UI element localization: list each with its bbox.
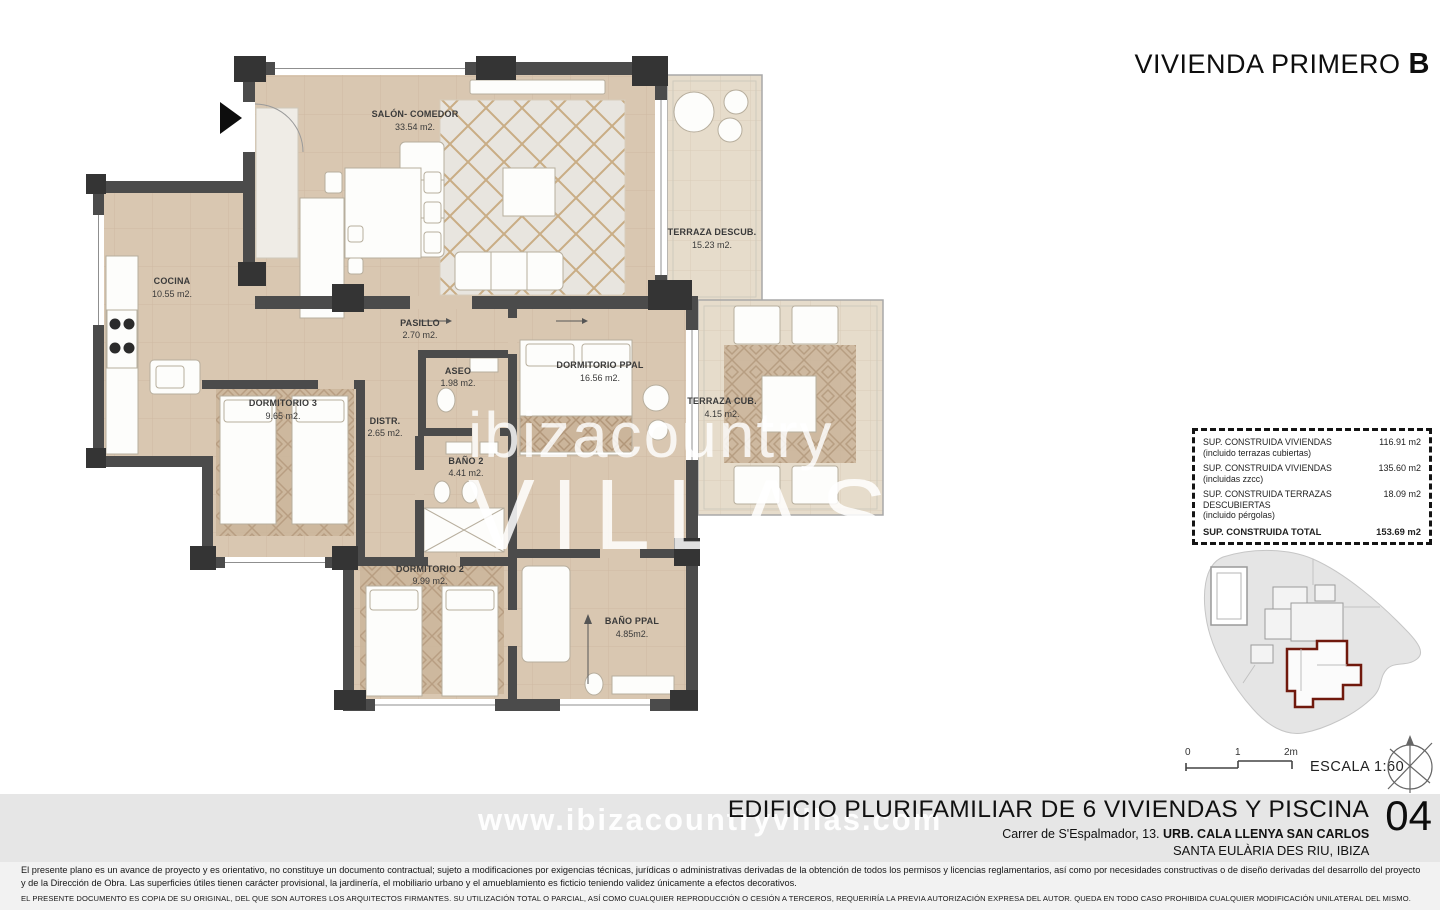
- table-row-total: SUP. CONSTRUIDA TOTAL 153.69 m2: [1203, 526, 1421, 537]
- site-plan: [1195, 545, 1440, 740]
- room-label-dorm2: DORMITORIO 2: [396, 564, 464, 574]
- room-label-pasillo: PASILLO: [400, 318, 440, 328]
- bathtub: [522, 566, 570, 662]
- room-label-terraza-descub: TERRAZA DESCUB.: [668, 227, 757, 237]
- sideboard: [470, 80, 605, 94]
- toilet: [462, 481, 478, 503]
- svg-text:9.65 m2.: 9.65 m2.: [265, 411, 300, 421]
- row-label: SUP. CONSTRUIDA VIVIENDAS: [1203, 463, 1332, 473]
- row-value: 153.69 m2: [1376, 526, 1421, 537]
- row-value: 116.91 m2: [1379, 437, 1421, 447]
- terrace-chair: [792, 466, 838, 504]
- svg-text:33.54 m2.: 33.54 m2.: [395, 122, 435, 132]
- washbasin: [446, 442, 472, 454]
- sheet-number: 04: [1385, 796, 1432, 836]
- room-label-terraza-cub: TERRAZA CUB.: [687, 396, 757, 406]
- terrace-coffee-table: [762, 376, 816, 432]
- title-block: EDIFICIO PLURIFAMILIAR DE 6 VIVIENDAS Y …: [728, 796, 1432, 858]
- row-value: 18.09 m2: [1383, 489, 1421, 499]
- table-row: SUP. CONSTRUIDA VIVIENDAS (incluidas zzc…: [1203, 463, 1421, 484]
- page-title-text: VIVIENDA PRIMERO: [1134, 49, 1400, 79]
- coffee-table: [503, 168, 555, 216]
- project-city: SANTA EULÀRIA DES RIU, IBIZA: [1173, 843, 1369, 858]
- table-row: SUP. CONSTRUIDA TERRAZAS DESCUBIERTAS (i…: [1203, 489, 1421, 521]
- scale-tick-1: 1: [1235, 747, 1241, 758]
- washbasin: [470, 358, 498, 372]
- room-label-dorm-ppal: DORMITORIO PPAL: [556, 360, 643, 370]
- areas-table: SUP. CONSTRUIDA VIVIENDAS (incluido terr…: [1192, 428, 1432, 545]
- address-urbanization: URB. CALA LLENYA SAN CARLOS: [1163, 827, 1369, 841]
- room-label-cocina: COCINA: [154, 276, 191, 286]
- room-label-bano-ppal: BAÑO PPAL: [605, 616, 659, 626]
- room-label-aseo: ASEO: [445, 366, 471, 376]
- pool: [1211, 567, 1247, 625]
- disclaimer-legal: EL PRESENTE DOCUMENTO ES COPIA DE SU ORI…: [21, 894, 1421, 903]
- plan-sheet: VIVIENDA PRIMERO B: [0, 0, 1440, 910]
- terrace-chair: [792, 306, 838, 344]
- row-sublabel: (incluidas zzcc): [1203, 474, 1263, 484]
- page-title: VIVIENDA PRIMERO B: [1134, 48, 1430, 81]
- table-row: SUP. CONSTRUIDA VIVIENDAS (incluido terr…: [1203, 437, 1421, 458]
- vanity: [612, 676, 674, 694]
- row-sublabel: (incluido pérgolas): [1203, 510, 1275, 520]
- row-label: SUP. CONSTRUIDA TERRAZAS DESCUBIERTAS: [1203, 489, 1332, 510]
- terrace-chair: [734, 306, 780, 344]
- svg-text:10.55 m2.: 10.55 m2.: [152, 289, 192, 299]
- project-address: Carrer de S'Espalmador, 13. URB. CALA LL…: [1002, 827, 1369, 841]
- terrace-chair: [734, 466, 780, 504]
- row-label: SUP. CONSTRUIDA VIVIENDAS: [1203, 437, 1332, 447]
- svg-text:4.15 m2.: 4.15 m2.: [704, 409, 739, 419]
- row-sublabel: (incluido terrazas cubiertas): [1203, 448, 1311, 458]
- entry-arrow-icon: [220, 102, 242, 134]
- page-title-letter: B: [1409, 48, 1430, 80]
- project-title: EDIFICIO PLURIFAMILIAR DE 6 VIVIENDAS Y …: [728, 796, 1369, 824]
- room-label-salon: SALÓN- COMEDOR: [372, 108, 459, 119]
- dining-table: [345, 168, 421, 258]
- svg-text:1.98 m2.: 1.98 m2.: [440, 378, 475, 388]
- disclaimer: El presente plano es un avance de proyec…: [21, 864, 1421, 903]
- entry-closet: [256, 108, 298, 258]
- scale-label: ESCALA 1:60: [1310, 759, 1404, 775]
- row-value: 135.60 m2: [1378, 463, 1421, 473]
- address-street: Carrer de S'Espalmador, 13.: [1002, 827, 1163, 841]
- row-label: SUP. CONSTRUIDA TOTAL: [1203, 526, 1321, 537]
- svg-text:9.99 m2.: 9.99 m2.: [412, 576, 447, 586]
- toilet: [437, 388, 455, 412]
- svg-text:16.56 m2.: 16.56 m2.: [580, 373, 620, 383]
- terrace-table: [674, 92, 714, 132]
- disclaimer-paragraph: El presente plano es un avance de proyec…: [21, 864, 1421, 890]
- scale-tick-0: 0: [1185, 747, 1191, 758]
- svg-text:15.23 m2.: 15.23 m2.: [692, 240, 732, 250]
- stove: [107, 310, 137, 368]
- sofa-2: [455, 252, 563, 290]
- room-label-dorm3: DORMITORIO 3: [249, 398, 317, 408]
- scale-tick-2: 2m: [1284, 747, 1298, 758]
- svg-text:4.41 m2.: 4.41 m2.: [448, 468, 483, 478]
- room-label-bano2: BAÑO 2: [448, 456, 483, 466]
- room-label-distr: DISTR.: [370, 416, 401, 426]
- svg-text:2.65 m2.: 2.65 m2.: [367, 428, 402, 438]
- svg-text:2.70 m2.: 2.70 m2.: [402, 330, 437, 340]
- svg-text:4.85m2.: 4.85m2.: [616, 629, 649, 639]
- bidet: [434, 481, 450, 503]
- scale-ruler: [1186, 761, 1292, 771]
- floor-plan: SALÓN- COMEDOR 33.54 m2. COCINA 10.55 m2…: [0, 0, 960, 760]
